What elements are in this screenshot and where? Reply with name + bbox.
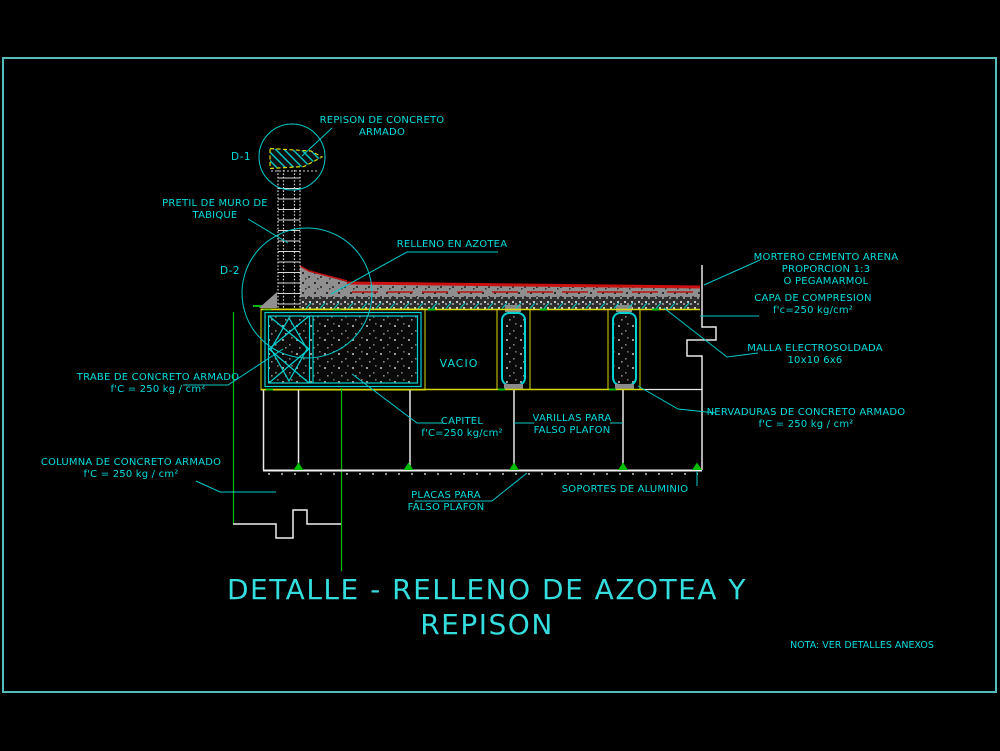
pretil-label-line2: TABIQUE (162, 210, 268, 222)
wall-base-chamfer (259, 292, 277, 308)
detail-marker-d1: D-1 (231, 151, 251, 163)
columna-label-line2: f'C = 250 kg / cm² (41, 469, 221, 481)
cad-viewport: REPISON DE CONCRETO ARMADO D-1 PRETIL DE… (0, 0, 1000, 751)
varillas-label-line1: VARILLAS PARA (533, 413, 612, 425)
capa-label-line2: f'c=250 kg/cm² (754, 305, 871, 317)
drawing-title-line2: REPISON (227, 607, 747, 642)
leader-malla (664, 308, 758, 357)
mortero-label-line3: O PEGAMARMOL (754, 276, 899, 288)
capitel-label: CAPITEL f'C=250 kg/cm² (421, 416, 502, 440)
columna-label: COLUMNA DE CONCRETO ARMADO f'C = 250 kg … (41, 457, 221, 481)
roof-fill (300, 266, 700, 297)
mortero-label-line1: MORTERO CEMENTO ARENA (754, 252, 899, 264)
soportes-label: SOPORTES DE ALUMINIO (562, 484, 689, 496)
trabe-label-line1: TRABE DE CONCRETO ARMADO (77, 372, 239, 384)
column-base-profile (233, 510, 341, 538)
repison-label: REPISON DE CONCRETO ARMADO (320, 115, 445, 139)
rib-2 (608, 309, 640, 390)
soportes-label-line1: SOPORTES DE ALUMINIO (562, 484, 689, 496)
trabe-label: TRABE DE CONCRETO ARMADO f'C = 250 kg / … (77, 372, 239, 396)
leader-mortero (704, 260, 760, 285)
detail-marker-d2: D-2 (220, 265, 240, 277)
placas-label-line2: FALSO PLAFON (408, 502, 485, 514)
ceiling-line (263, 463, 702, 475)
repison-label-line2: ARMADO (320, 127, 445, 139)
capa-label-line1: CAPA DE COMPRESION (754, 293, 871, 305)
capitel-label-line1: CAPITEL (421, 416, 502, 428)
capa-label: CAPA DE COMPRESION f'c=250 kg/cm² (754, 293, 871, 317)
columna-label-line1: COLUMNA DE CONCRETO ARMADO (41, 457, 221, 469)
vacio-label: VACIO (440, 357, 479, 370)
mortero-label: MORTERO CEMENTO ARENA PROPORCION 1:3 O P… (754, 252, 899, 288)
malla-label-line2: 10x10 6x6 (747, 355, 883, 367)
aluminium-supports (294, 463, 703, 471)
pretil-label-line1: PRETIL DE MURO DE (162, 198, 268, 210)
drawing-title: DETALLE - RELLENO DE AZOTEA Y REPISON (227, 572, 747, 642)
nervaduras-label: NERVADURAS DE CONCRETO ARMADO f'C = 250 … (707, 407, 906, 431)
placas-label-line1: PLACAS PARA (408, 490, 485, 502)
varillas-label: VARILLAS PARA FALSO PLAFON (533, 413, 612, 437)
rib-1 (497, 309, 530, 390)
malla-label-line1: MALLA ELECTROSOLDADA (747, 343, 883, 355)
relleno-label-line1: RELLENO EN AZOTEA (397, 239, 507, 251)
pretil-label: PRETIL DE MURO DE TABIQUE (162, 198, 268, 222)
relleno-label: RELLENO EN AZOTEA (397, 239, 507, 251)
beam-capital-block (261, 309, 425, 390)
mortero-label-line2: PROPORCION 1:3 (754, 264, 899, 276)
drawing-title-line1: DETALLE - RELLENO DE AZOTEA Y (227, 572, 747, 607)
malla-label: MALLA ELECTROSOLDADA 10x10 6x6 (747, 343, 883, 367)
leader-columna (196, 481, 276, 492)
leader-lines (183, 128, 760, 501)
trabe-label-line2: f'C = 250 kg / cm² (77, 384, 239, 396)
placas-label: PLACAS PARA FALSO PLAFON (408, 490, 485, 514)
note-text: NOTA: VER DETALLES ANEXOS (790, 640, 934, 651)
nervaduras-label-line2: f'C = 250 kg / cm² (707, 419, 906, 431)
repison-cap (270, 149, 322, 169)
repison-label-line1: REPISON DE CONCRETO (320, 115, 445, 127)
varillas-label-line2: FALSO PLAFON (533, 425, 612, 437)
nervaduras-label-line1: NERVADURAS DE CONCRETO ARMADO (707, 407, 906, 419)
capitel-label-line2: f'C=250 kg/cm² (421, 428, 502, 440)
